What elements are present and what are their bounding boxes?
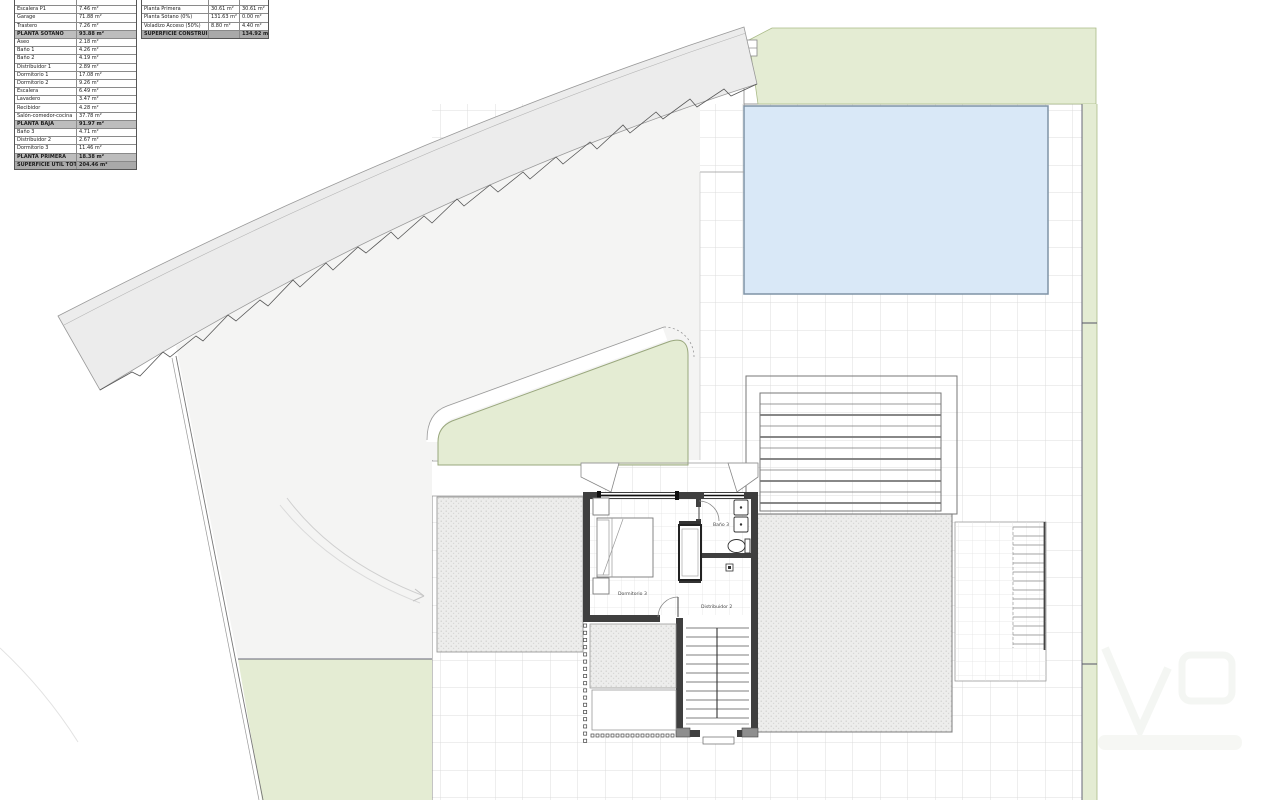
railing-south [591,734,674,737]
table-row: Escalera P1 7.46 m² [15,5,136,13]
row-label: Dormitorio 2 [15,80,76,87]
south-door-opening [700,730,737,737]
table-row: Baño 2 4.19 m² [15,54,136,62]
row-value: 2.67 m² [76,137,136,144]
area-table-built-surface: Planta Primera 30.61 m² 30.61 m² Planta … [141,0,269,39]
row-value: 71.88 m² [76,14,136,21]
garden-southwest [238,659,432,800]
table-row: PLANTA SÓTANO 93.88 m² [15,30,136,38]
row-label: Planta Primera [142,6,208,13]
table-row: Lavadero 3.47 m² [15,95,136,103]
row-label: Dormitorio 3 [15,145,76,152]
row-label: Baño 2 [15,55,76,62]
railing-west [584,624,587,742]
walkway-band [432,461,583,496]
flat-roof-east [757,514,952,732]
room-label-bedroom: Dormitorio 3 [618,591,647,597]
row-value: 4.26 m² [76,47,136,54]
row-value-gross: 30.61 m² [208,6,239,13]
nightstand-top [593,498,609,515]
row-value: 7.26 m² [76,23,136,30]
area-table-useful-surface: Escalera P1 7.46 m² Garage 71.88 m² Tras… [14,0,137,170]
row-value: 2.18 m² [76,39,136,46]
wardrobe [679,521,701,583]
row-value: 37.78 m² [76,113,136,120]
row-label: Escalera P1 [15,6,76,13]
table-row: Planta Sótano (0%) 131.63 m² 0.00 m² [142,13,268,21]
row-value-gross: 8.80 m² [208,23,239,30]
toilet-tank [745,539,750,553]
swimming-pool [744,106,1048,294]
table-row: Distribuidor 1 2.89 m² [15,63,136,71]
pier-right [742,728,758,737]
watermark [1098,648,1242,750]
exterior-stairs-east [955,522,1046,681]
flat-roof-west [437,497,583,652]
row-value-computed: 134.92 m² [239,31,268,38]
room-label-hall: Distribuidor 2 [701,604,732,610]
row-label [142,0,208,5]
row-value: 4.28 m² [76,104,136,111]
bed [597,518,653,577]
row-label: Dormitorio 1 [15,72,76,79]
table-row: Trastero 7.26 m² [15,22,136,30]
table-row: Dormitorio 3 11.46 m² [15,144,136,152]
row-value: 4.71 m² [76,129,136,136]
table-row: Planta Primera 30.61 m² 30.61 m² [142,5,268,13]
table-row: Escalera 6.49 m² [15,87,136,95]
toilet-bowl [728,540,745,553]
garden-east-strip [1082,104,1097,800]
row-label [15,0,76,5]
jamb-2 [675,491,679,500]
row-value: 7.46 m² [76,6,136,13]
row-label: SUPERFICIE ÚTIL TOTAL [15,162,76,169]
table-row: Dormitorio 2 9.26 m² [15,79,136,87]
door-threshold [703,737,734,744]
row-value: 91.97 m² [76,121,136,128]
table-row: PLANTA BAJA 91.97 m² [15,120,136,128]
row-value: 6.49 m² [76,88,136,95]
garden-north [749,28,1096,104]
row-value: 9.26 m² [76,80,136,87]
table-row [15,0,136,5]
table-row: Voladizo Acceso (50%) 8.80 m² 4.40 m² [142,22,268,30]
row-label: Planta Sótano (0%) [142,14,208,21]
table-row: Dormitorio 1 17.08 m² [15,71,136,79]
row-label: PLANTA SÓTANO [15,31,76,38]
table-row: Recibidor 4.28 m² [15,103,136,111]
row-value: 204.46 m² [76,162,136,169]
table-row: Salón-comedor-cocina 37.78 m² [15,112,136,120]
table-row: SUPERFICIE CONSTRUIDA TOTAL 134.92 m² [142,30,268,38]
row-label: Voladizo Acceso (50%) [142,23,208,30]
floor-plan-svg: Dormitorio 3 Baño 3 Distribuidor 2 [0,0,1280,800]
row-label: Salón-comedor-cocina [15,113,76,120]
row-label: Garage [15,14,76,21]
row-value-gross: 131.63 m² [208,14,239,21]
row-value: 2.89 m² [76,64,136,71]
row-label: Recibidor [15,104,76,111]
row-label: Distribuidor 1 [15,64,76,71]
row-value-computed: 4.40 m² [239,23,268,30]
roof-patch-south [590,624,676,688]
room-label-bath: Baño 3 [713,522,729,528]
row-label: Distribuidor 2 [15,137,76,144]
row-value-computed [239,0,268,5]
pier-left [676,728,690,737]
row-label: Baño 3 [15,129,76,136]
nightstand-bottom [593,578,609,594]
row-value: 3.47 m² [76,96,136,103]
table-row: Baño 1 4.26 m² [15,46,136,54]
table-row: Aseo 2.18 m² [15,38,136,46]
row-label: Aseo [15,39,76,46]
row-label: Escalera [15,88,76,95]
site-plan-page: { "tables": { "left": { "rows": [ {"labe… [0,0,1280,800]
row-value: 18.38 m² [76,154,136,161]
table-row: Garage 71.88 m² [15,13,136,21]
table-row: Baño 3 4.71 m² [15,128,136,136]
deck-south [592,690,676,730]
row-value [76,0,136,5]
row-label: PLANTA BAJA [15,121,76,128]
row-value-gross [208,0,239,5]
row-value: 93.88 m² [76,31,136,38]
row-label: Baño 1 [15,47,76,54]
table-row: PLANTA PRIMERA 18.38 m² [15,153,136,161]
building-first-floor: Dormitorio 3 Baño 3 Distribuidor 2 [581,463,758,744]
row-value-gross [208,31,239,38]
row-label: Lavadero [15,96,76,103]
row-value: 4.19 m² [76,55,136,62]
table-row [142,0,268,5]
row-value: 17.08 m² [76,72,136,79]
row-value: 11.46 m² [76,145,136,152]
row-label: SUPERFICIE CONSTRUIDA TOTAL [142,31,208,38]
table-row: Distribuidor 2 2.67 m² [15,136,136,144]
row-label: PLANTA PRIMERA [15,154,76,161]
row-label: Trastero [15,23,76,30]
table-row: SUPERFICIE ÚTIL TOTAL 204.46 m² [15,161,136,169]
row-value-computed: 30.61 m² [239,6,268,13]
row-value-computed: 0.00 m² [239,14,268,21]
